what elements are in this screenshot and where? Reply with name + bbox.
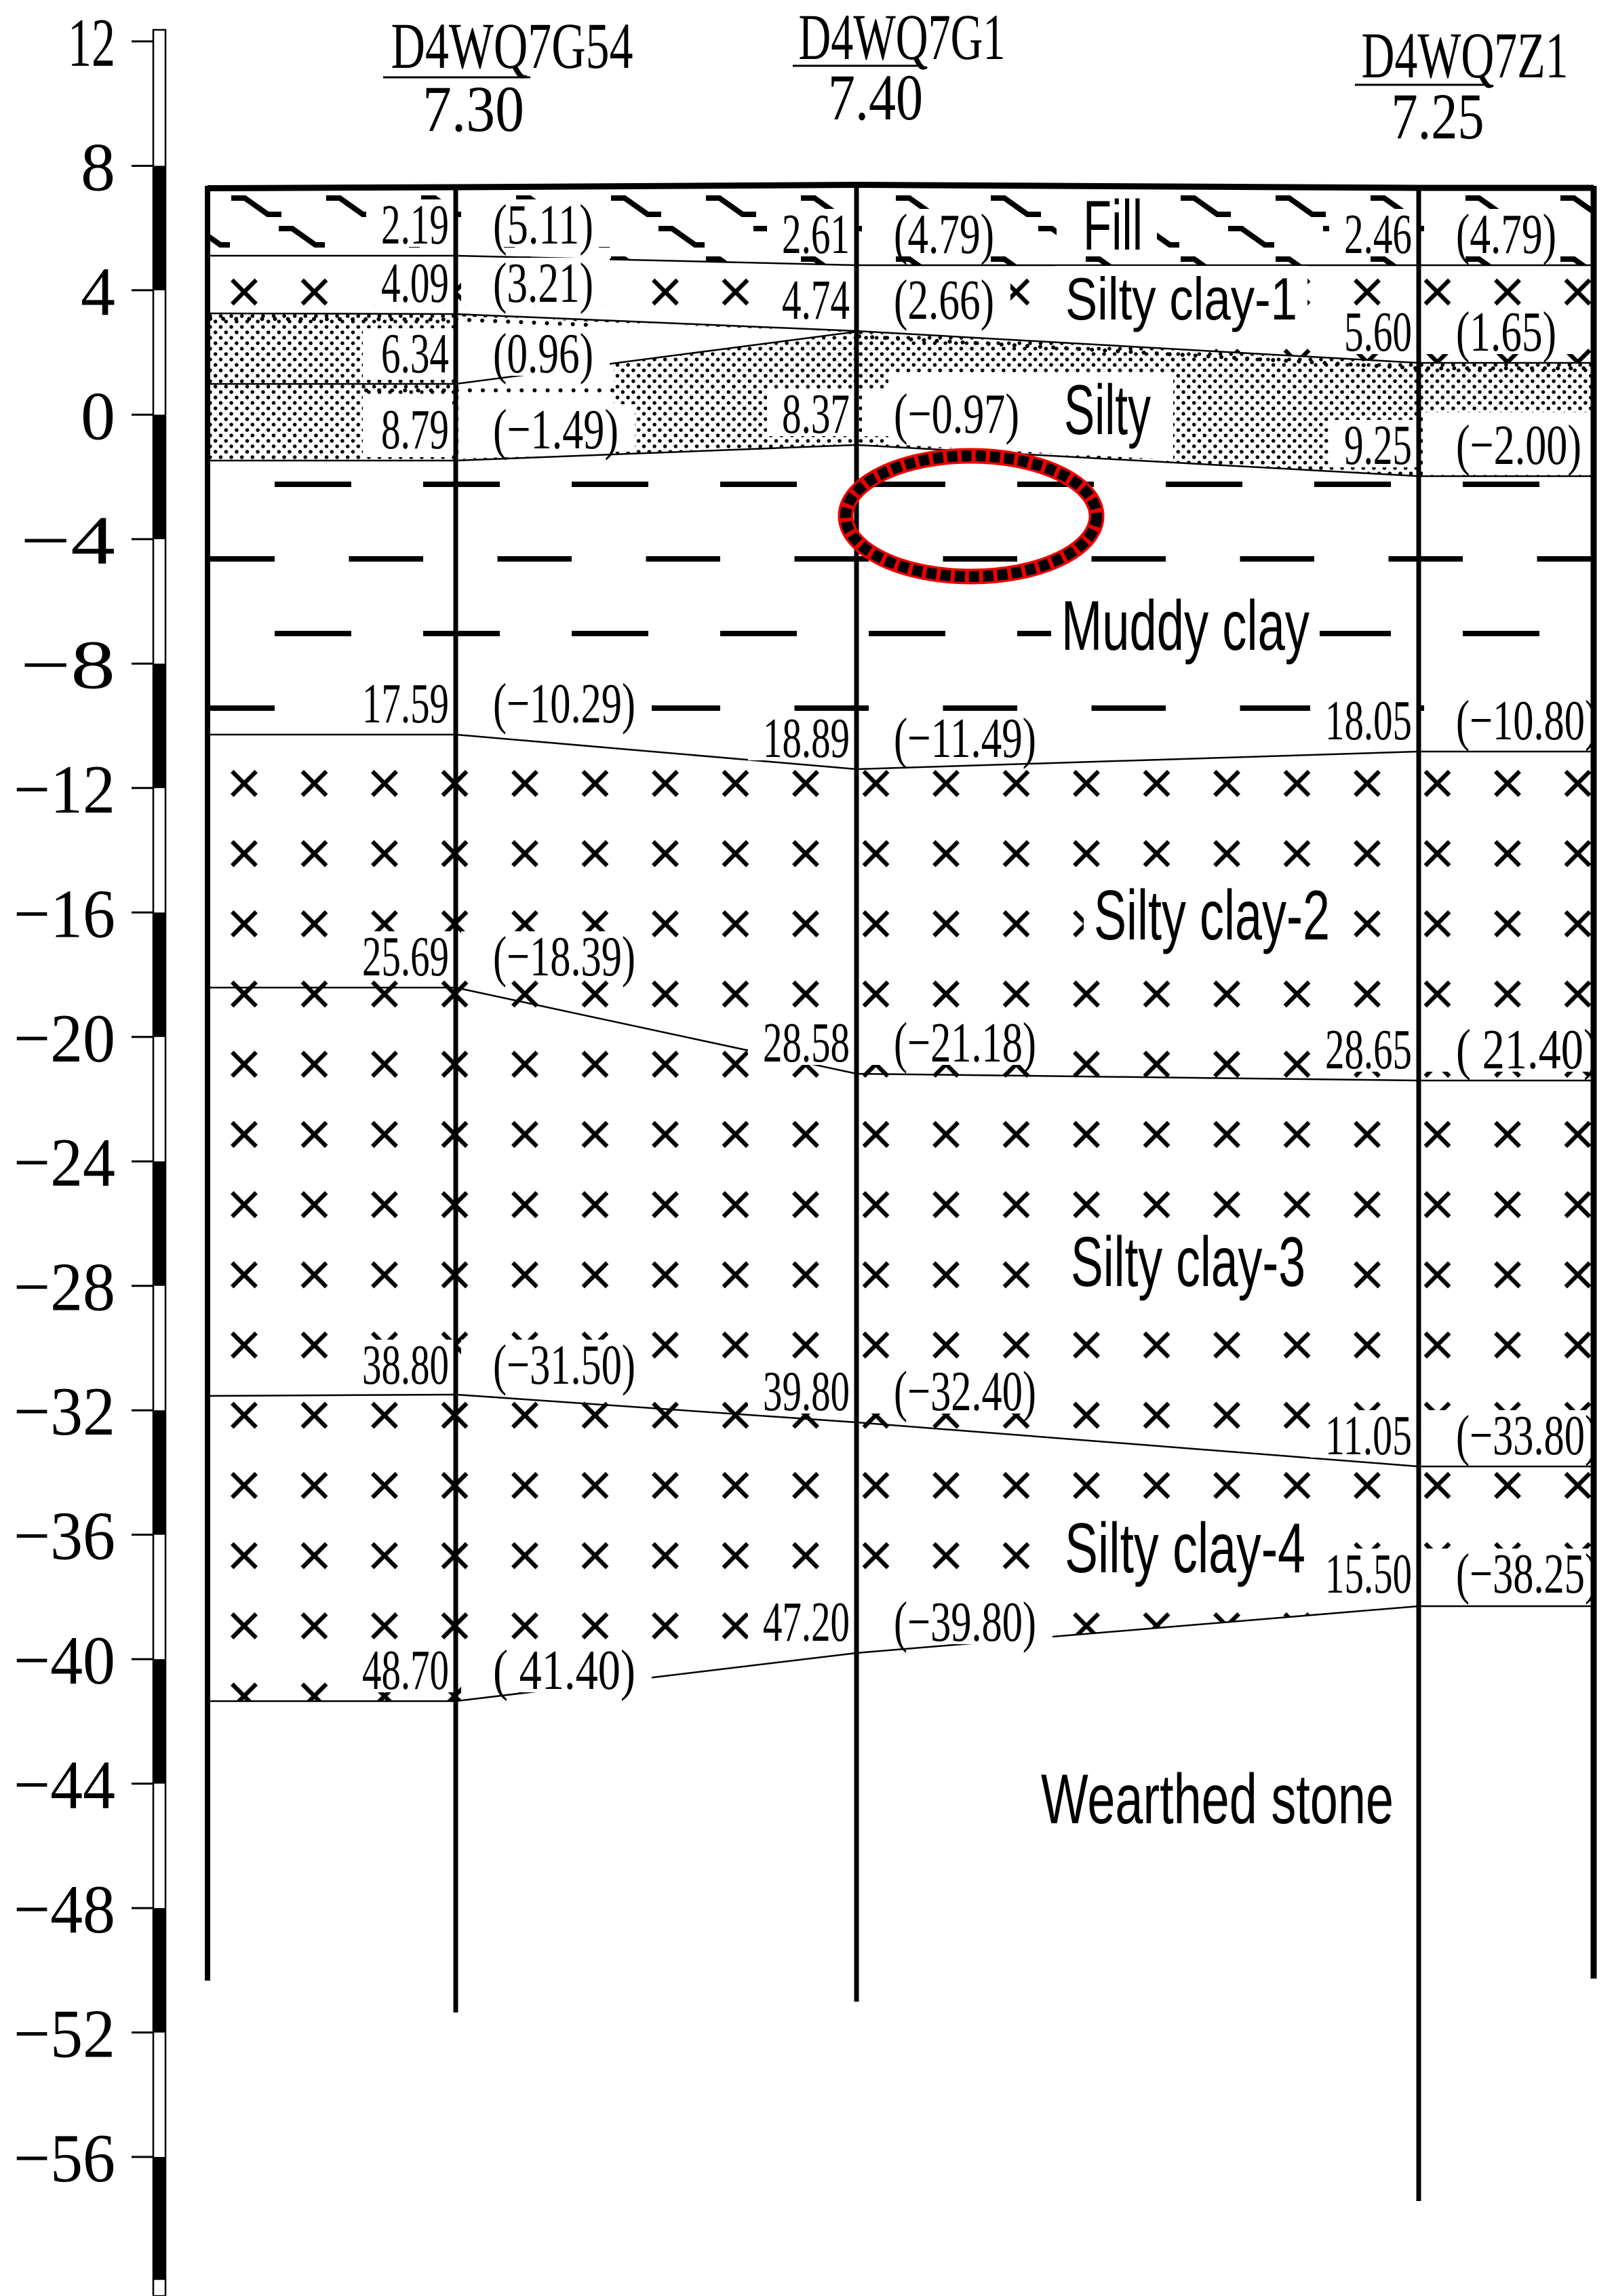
- svg-text:8.37: 8.37: [782, 383, 850, 446]
- svg-text:−52: −52: [14, 1996, 115, 2073]
- svg-text:−4: −4: [20, 503, 115, 579]
- svg-text:Silty clay-4: Silty clay-4: [1065, 1509, 1305, 1588]
- svg-text:11.05: 11.05: [1325, 1404, 1412, 1467]
- svg-text:9.25: 9.25: [1344, 414, 1412, 477]
- svg-text:−36: −36: [14, 1498, 115, 1575]
- svg-text:2.46: 2.46: [1344, 203, 1412, 266]
- svg-text:(−31.50): (−31.50): [493, 1334, 635, 1397]
- svg-text:48.70: 48.70: [362, 1639, 449, 1702]
- svg-text:(−39.80): (−39.80): [894, 1591, 1036, 1654]
- svg-text:(−32.40): (−32.40): [894, 1360, 1036, 1423]
- svg-text:−8: −8: [20, 627, 115, 703]
- svg-text:(−2.00): (−2.00): [1456, 414, 1581, 477]
- svg-text:(4.79): (4.79): [894, 203, 994, 266]
- svg-text:−48: −48: [14, 1871, 115, 1948]
- svg-text:Silty clay-2: Silty clay-2: [1094, 876, 1330, 955]
- svg-text:Silty: Silty: [1064, 371, 1151, 450]
- svg-text:( 21.40): ( 21.40): [1456, 1018, 1598, 1081]
- svg-text:−56: −56: [14, 2120, 115, 2197]
- svg-text:Silty clay-3: Silty clay-3: [1071, 1223, 1305, 1302]
- svg-text:−32: −32: [14, 1374, 115, 1450]
- svg-text:(−0.97): (−0.97): [894, 383, 1019, 446]
- svg-text:2.61: 2.61: [782, 203, 850, 266]
- svg-text:(3.21): (3.21): [493, 252, 593, 315]
- svg-text:8: 8: [81, 130, 115, 206]
- svg-text:12: 12: [68, 5, 115, 81]
- svg-text:7.30: 7.30: [422, 73, 524, 145]
- svg-text:−20: −20: [14, 1000, 115, 1077]
- svg-text:−40: −40: [14, 1622, 115, 1699]
- svg-text:4: 4: [81, 254, 115, 330]
- svg-text:−12: −12: [14, 752, 115, 828]
- svg-text:(−1.49): (−1.49): [493, 398, 618, 461]
- svg-text:(4.79): (4.79): [1456, 203, 1556, 266]
- svg-text:Muddy clay: Muddy clay: [1061, 587, 1310, 665]
- svg-text:6.34: 6.34: [381, 322, 449, 385]
- svg-text:( 41.40): ( 41.40): [493, 1639, 635, 1702]
- svg-text:7.25: 7.25: [1392, 80, 1484, 153]
- svg-text:Fill: Fill: [1083, 187, 1143, 265]
- svg-text:−44: −44: [14, 1747, 115, 1824]
- svg-text:(1.65): (1.65): [1456, 300, 1556, 364]
- svg-text:2.19: 2.19: [381, 193, 449, 256]
- svg-text:18.05: 18.05: [1325, 689, 1412, 752]
- svg-text:39.80: 39.80: [763, 1360, 850, 1423]
- svg-text:−16: −16: [14, 876, 115, 952]
- svg-text:(−10.29): (−10.29): [493, 672, 635, 735]
- svg-text:(−33.80): (−33.80): [1456, 1404, 1598, 1467]
- svg-text:Silty clay-1: Silty clay-1: [1065, 265, 1297, 332]
- svg-text:17.59: 17.59: [362, 672, 449, 735]
- svg-text:4.74: 4.74: [782, 269, 850, 332]
- svg-text:7.40: 7.40: [828, 61, 923, 134]
- svg-text:(−18.39): (−18.39): [493, 925, 635, 988]
- svg-text:−24: −24: [14, 1125, 115, 1201]
- svg-text:18.89: 18.89: [763, 707, 850, 770]
- svg-text:28.58: 28.58: [763, 1011, 850, 1074]
- svg-text:(−10.80): (−10.80): [1456, 689, 1598, 752]
- svg-text:47.20: 47.20: [763, 1591, 850, 1654]
- svg-text:28.65: 28.65: [1325, 1018, 1412, 1081]
- svg-text:(−11.49): (−11.49): [894, 707, 1036, 770]
- svg-text:D4WQ7G54: D4WQ7G54: [391, 9, 633, 82]
- svg-text:Wearthed stone: Wearthed stone: [1041, 1760, 1394, 1839]
- svg-text:8.79: 8.79: [381, 398, 449, 461]
- svg-text:(5.11): (5.11): [493, 193, 593, 256]
- svg-text:4.09: 4.09: [381, 252, 449, 315]
- svg-text:(−21.18): (−21.18): [894, 1011, 1036, 1074]
- svg-text:25.69: 25.69: [362, 925, 449, 988]
- svg-text:0: 0: [81, 378, 115, 454]
- svg-text:(0.96): (0.96): [493, 322, 593, 385]
- svg-text:−28: −28: [14, 1249, 115, 1326]
- svg-text:(2.66): (2.66): [894, 269, 994, 332]
- svg-text:5.60: 5.60: [1344, 300, 1412, 364]
- svg-text:38.80: 38.80: [362, 1334, 449, 1397]
- svg-text:15.50: 15.50: [1325, 1542, 1412, 1606]
- svg-text:(−38.25): (−38.25): [1456, 1542, 1598, 1606]
